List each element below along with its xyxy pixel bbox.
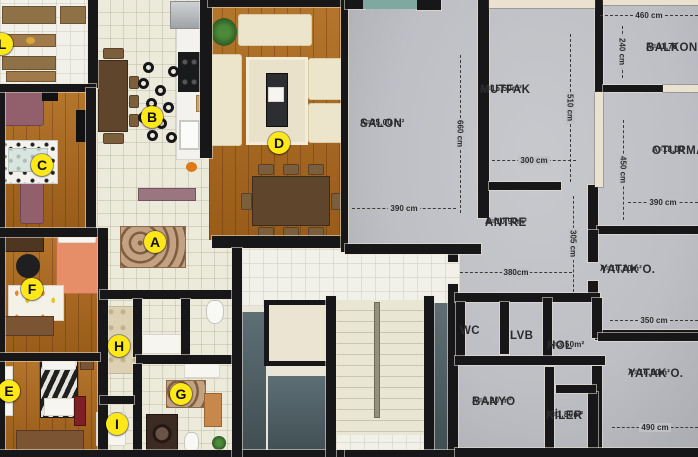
dimension-label: 240 cm bbox=[618, 36, 627, 67]
dimension-label: 350 cm bbox=[638, 316, 669, 325]
wall bbox=[212, 236, 345, 248]
dimension-label: 660 cm bbox=[456, 118, 465, 149]
dimension-label: 450 cm bbox=[619, 154, 628, 185]
wall bbox=[86, 88, 96, 232]
wall bbox=[455, 448, 698, 457]
armchair bbox=[308, 103, 344, 143]
wall bbox=[478, 0, 489, 218]
marker-f[interactable]: F bbox=[21, 278, 43, 300]
dimension-label: 490 cm bbox=[639, 423, 670, 432]
wall bbox=[597, 226, 698, 234]
dimension-label: 380cm bbox=[502, 268, 531, 277]
wall bbox=[232, 248, 242, 457]
kitchen-chair bbox=[129, 95, 139, 108]
wall bbox=[595, 92, 603, 187]
wall bbox=[341, 0, 348, 252]
kitchen-stool bbox=[147, 130, 158, 141]
wall bbox=[100, 396, 134, 404]
stair-railing bbox=[374, 302, 380, 418]
kitchen-dining-table bbox=[98, 60, 128, 132]
wall bbox=[598, 333, 698, 341]
wall bbox=[0, 228, 102, 237]
wall bbox=[345, 244, 481, 254]
wall bbox=[424, 296, 434, 457]
bathtub bbox=[142, 334, 184, 354]
wall bbox=[133, 299, 142, 357]
floor-plan: SALON A=25,00 m² MUTFAK A=15,50m² BALKON… bbox=[0, 0, 698, 457]
wall bbox=[588, 185, 598, 232]
armchair bbox=[308, 58, 344, 100]
stove-cooktop bbox=[178, 52, 201, 92]
staircase bbox=[336, 300, 424, 435]
dimension-label: 390 cm bbox=[388, 204, 419, 213]
terrace-table bbox=[6, 71, 56, 82]
dimension-490-cm: 490 cm bbox=[612, 421, 698, 433]
refrigerator bbox=[170, 1, 201, 29]
dining-chair bbox=[258, 164, 274, 175]
dining-table bbox=[252, 176, 330, 226]
marker-h[interactable]: H bbox=[108, 335, 130, 357]
sofa bbox=[20, 182, 44, 224]
dimension-390-cm: 390 cm bbox=[352, 202, 456, 214]
cabinet bbox=[204, 393, 222, 427]
marker-g[interactable]: G bbox=[170, 383, 192, 405]
wall bbox=[345, 450, 460, 457]
terrace-bench bbox=[2, 6, 56, 24]
tv-stand bbox=[42, 92, 58, 101]
armoire bbox=[74, 396, 86, 426]
wall bbox=[663, 85, 698, 92]
wall bbox=[88, 0, 98, 88]
wall bbox=[136, 355, 234, 364]
wall bbox=[181, 299, 190, 357]
kitchen-chair bbox=[103, 133, 124, 144]
kitchen-stool bbox=[163, 102, 174, 113]
dimension-300-cm: 300 cm bbox=[492, 154, 576, 166]
dining-chair bbox=[241, 193, 252, 210]
sofa bbox=[238, 14, 312, 46]
dimension-460-cm: 460 cm bbox=[600, 9, 698, 21]
kitchen-stool bbox=[138, 78, 149, 89]
terrace-bench bbox=[2, 56, 56, 70]
wall bbox=[592, 298, 602, 338]
dimension-label: 300 cm bbox=[518, 156, 549, 165]
wall bbox=[100, 290, 233, 299]
kitchen-stool bbox=[168, 66, 179, 77]
plant bbox=[212, 436, 226, 450]
blanket bbox=[44, 398, 74, 416]
marker-d[interactable]: D bbox=[268, 132, 290, 154]
dresser bbox=[2, 316, 54, 336]
wall bbox=[326, 296, 336, 457]
wall bbox=[0, 450, 345, 457]
wall bbox=[556, 385, 596, 393]
dining-chair bbox=[308, 164, 324, 175]
washing-machine bbox=[146, 414, 178, 450]
wall bbox=[417, 0, 441, 10]
dimension-label: 460 cm bbox=[633, 11, 664, 20]
wall bbox=[200, 0, 212, 158]
plant bbox=[211, 18, 237, 46]
sofa bbox=[0, 92, 44, 126]
wall bbox=[489, 182, 561, 190]
wall bbox=[489, 0, 595, 8]
elevator-cabin bbox=[264, 300, 334, 366]
dining-chair bbox=[283, 164, 299, 175]
terrace-centerpiece bbox=[26, 37, 35, 44]
wall bbox=[455, 356, 605, 365]
wall bbox=[0, 84, 96, 92]
dimension-350-cm: 350 cm bbox=[610, 314, 698, 326]
kitchen-stool bbox=[166, 132, 177, 143]
dimension-390-cm: 390 cm bbox=[628, 196, 698, 208]
wall bbox=[500, 302, 509, 354]
dimension-660-cm: 660 cm bbox=[454, 55, 466, 213]
wall bbox=[133, 364, 142, 457]
wall bbox=[603, 0, 698, 5]
office-chair bbox=[16, 254, 40, 278]
toilet bbox=[206, 300, 224, 324]
sofa bbox=[210, 54, 242, 146]
kitchen-stool bbox=[143, 62, 154, 73]
dimension-label: 305 cm bbox=[569, 228, 578, 259]
laptop bbox=[268, 87, 284, 102]
dimension-380cm: 380cm bbox=[460, 266, 572, 278]
dimension-label: 390 cm bbox=[647, 198, 678, 207]
marker-c[interactable]: C bbox=[31, 154, 53, 176]
dimension-label: 510 cm bbox=[566, 92, 575, 123]
wall bbox=[588, 230, 598, 262]
wall bbox=[345, 0, 365, 9]
wall bbox=[455, 293, 600, 302]
dresser bbox=[16, 430, 84, 452]
kitchen-sink bbox=[179, 120, 200, 150]
fruit-bowl bbox=[186, 162, 197, 172]
terrace-bench bbox=[60, 6, 86, 24]
marker-b[interactable]: B bbox=[141, 106, 163, 128]
wall bbox=[603, 85, 665, 92]
wall bbox=[0, 353, 100, 361]
kitchen-stool bbox=[155, 85, 166, 96]
elevator-shaft bbox=[240, 312, 266, 457]
elevator-shaft bbox=[268, 376, 330, 457]
kitchen-chair bbox=[103, 48, 124, 59]
balcony-glass bbox=[363, 0, 417, 9]
bench bbox=[138, 188, 196, 201]
wall bbox=[208, 0, 345, 7]
marker-i[interactable]: I bbox=[106, 413, 128, 435]
dimension-240-cm: 240 cm bbox=[616, 26, 628, 78]
marker-a[interactable]: A bbox=[144, 231, 166, 253]
